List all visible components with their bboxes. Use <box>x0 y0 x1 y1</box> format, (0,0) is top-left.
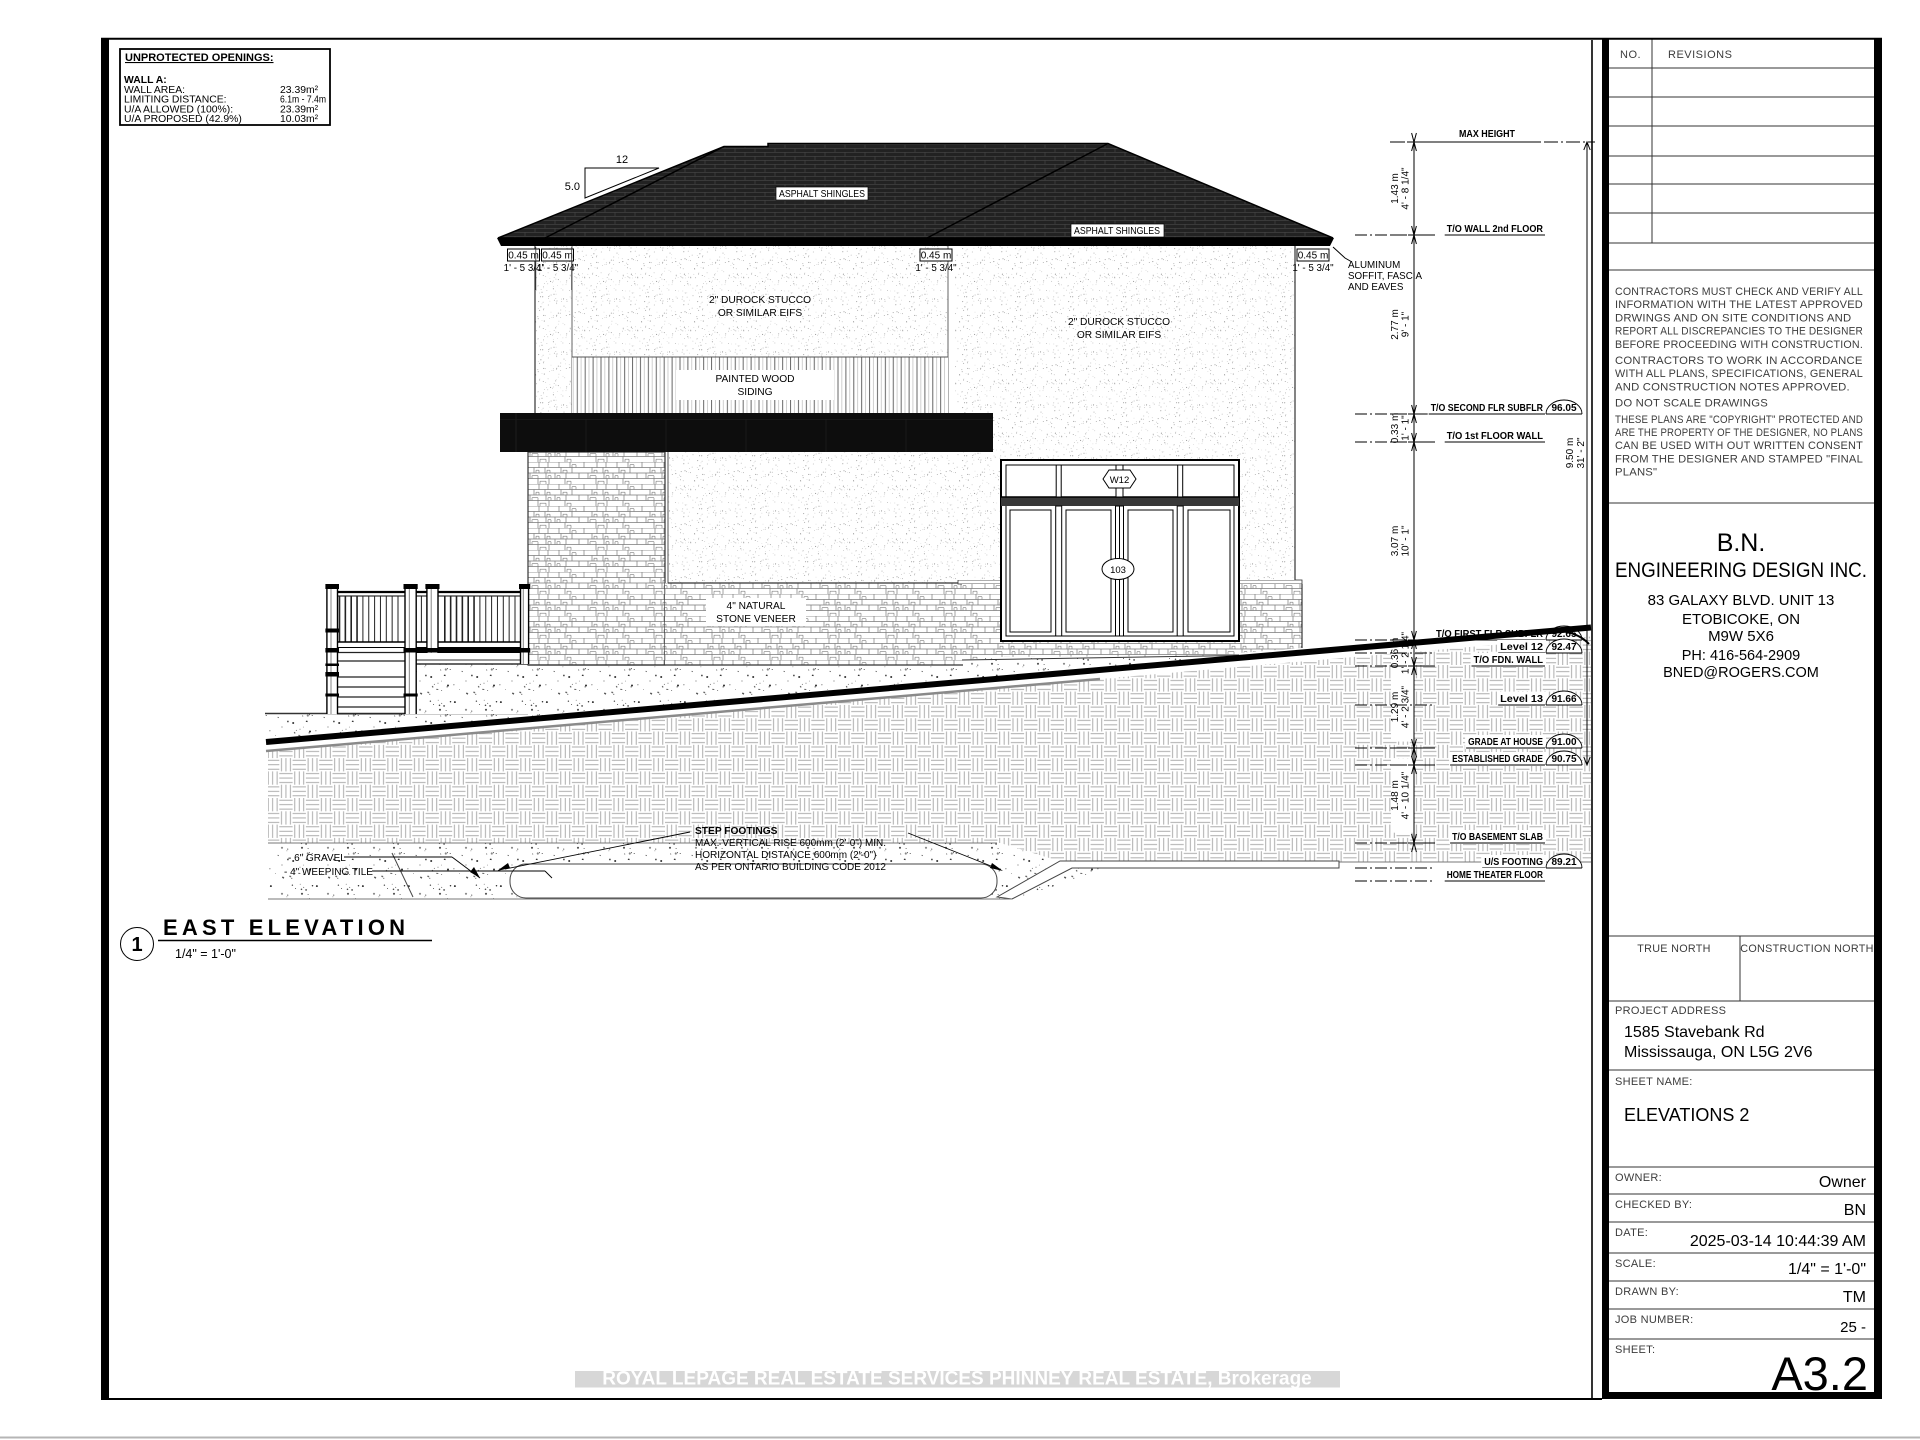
svg-text:INFORMATION WITH THE LATEST AP: INFORMATION WITH THE LATEST APPROVED <box>1615 299 1863 311</box>
svg-text:1.48 m: 1.48 m <box>1390 780 1401 811</box>
svg-text:2.77 m: 2.77 m <box>1390 309 1401 340</box>
svg-text:SHEET:: SHEET: <box>1615 1344 1655 1356</box>
svg-text:BEFORE PROCEEDING WITH CONSTRU: BEFORE PROCEEDING WITH CONSTRUCTION. <box>1615 339 1863 351</box>
svg-text:OR SIMILAR EIFS: OR SIMILAR EIFS <box>1077 330 1162 341</box>
svg-text:83 GALAXY BLVD. UNIT 13: 83 GALAXY BLVD. UNIT 13 <box>1648 592 1835 609</box>
svg-text:CONSTRUCTION NORTH: CONSTRUCTION NORTH <box>1740 943 1874 955</box>
svg-text:1' - 5 3/4": 1' - 5 3/4" <box>1292 263 1334 274</box>
svg-text:AND EAVES: AND EAVES <box>1348 282 1404 293</box>
svg-text:ELEVATIONS 2: ELEVATIONS 2 <box>1624 1105 1749 1125</box>
svg-text:2" DUROCK STUCCO: 2" DUROCK STUCCO <box>709 295 811 306</box>
svg-text:91.00: 91.00 <box>1551 737 1576 748</box>
svg-text:SOFFIT, FASCIA: SOFFIT, FASCIA <box>1348 271 1422 282</box>
svg-text:SHEET NAME:: SHEET NAME: <box>1615 1076 1693 1088</box>
svg-text:DO NOT SCALE DRAWINGS: DO NOT SCALE DRAWINGS <box>1615 398 1768 410</box>
svg-text:CAN BE USED WITH OUT WRITTEN C: CAN BE USED WITH OUT WRITTEN CONSENT <box>1615 440 1863 452</box>
svg-text:PH: 416-564-2909: PH: 416-564-2909 <box>1682 648 1801 664</box>
svg-text:NO.: NO. <box>1620 49 1641 61</box>
svg-text:91.66: 91.66 <box>1551 694 1576 705</box>
svg-text:1' - 5 3/4": 1' - 5 3/4" <box>537 263 579 274</box>
svg-text:- 6" GRAVEL: - 6" GRAVEL <box>288 853 346 864</box>
svg-text:0.45 m: 0.45 m <box>1298 251 1329 262</box>
svg-text:PAINTED WOOD: PAINTED WOOD <box>715 374 794 385</box>
svg-text:BNED@ROGERS.COM: BNED@ROGERS.COM <box>1663 665 1819 681</box>
svg-text:CONTRACTORS MUST CHECK AND VER: CONTRACTORS MUST CHECK AND VERIFY ALL <box>1615 286 1863 298</box>
svg-text:12: 12 <box>616 154 628 166</box>
svg-text:ENGINEERING DESIGN INC.: ENGINEERING DESIGN INC. <box>1615 558 1867 582</box>
svg-text:4' - 2 3/4": 4' - 2 3/4" <box>1401 685 1412 728</box>
svg-text:103: 103 <box>1110 565 1126 576</box>
svg-text:- 4" WEEPING TILE: - 4" WEEPING TILE <box>284 867 373 878</box>
svg-text:DRAWN BY:: DRAWN BY: <box>1615 1286 1679 1298</box>
svg-text:DRWINGS AND ON SITE CONDITIONS: DRWINGS AND ON SITE CONDITIONS AND <box>1615 312 1851 324</box>
svg-text:ASPHALT SHINGLES: ASPHALT SHINGLES <box>779 189 865 200</box>
svg-text:WITH ALL PLANS, SPECIFICATIONS: WITH ALL PLANS, SPECIFICATIONS, GENERAL <box>1615 368 1863 380</box>
svg-text:U/S FOOTING: U/S FOOTING <box>1484 856 1543 868</box>
svg-text:T/O 1st FLOOR WALL: T/O 1st FLOOR WALL <box>1447 430 1544 442</box>
svg-text:5.0: 5.0 <box>565 181 580 193</box>
svg-text:92.47: 92.47 <box>1551 642 1576 653</box>
svg-text:4' - 8 1/4": 4' - 8 1/4" <box>1401 167 1412 210</box>
svg-text:T/O SECOND FLR SUBFLR: T/O SECOND FLR SUBFLR <box>1431 402 1544 414</box>
svg-text:MAX HEIGHT: MAX HEIGHT <box>1459 128 1515 140</box>
svg-text:0.33 m: 0.33 m <box>1390 413 1401 444</box>
svg-text:T/O WALL 2nd FLOOR: T/O WALL 2nd FLOOR <box>1447 223 1544 235</box>
svg-text:ARE THE PROPERTY OF THE DESIGN: ARE THE PROPERTY OF THE DESIGNER, NO PLA… <box>1615 427 1863 439</box>
svg-text:T/O FDN. WALL: T/O FDN. WALL <box>1474 654 1544 666</box>
svg-text:0.45 m: 0.45 m <box>508 251 539 262</box>
svg-text:1' - 5 3/4": 1' - 5 3/4" <box>915 263 957 274</box>
svg-text:ROYAL LEPAGE REAL ESTATE SERVI: ROYAL LEPAGE REAL ESTATE SERVICES PHINNE… <box>602 1369 1312 1390</box>
svg-text:4" NATURAL: 4" NATURAL <box>727 601 786 612</box>
svg-text:1: 1 <box>131 934 142 956</box>
svg-text:ALUMINUM: ALUMINUM <box>1348 260 1400 271</box>
svg-text:90.75: 90.75 <box>1551 754 1576 765</box>
svg-text:89.21: 89.21 <box>1551 857 1576 868</box>
svg-text:PLANS": PLANS" <box>1615 467 1657 479</box>
svg-text:CONTRACTORS TO WORK IN ACCORDA: CONTRACTORS TO WORK IN ACCORDANCE <box>1615 355 1863 367</box>
svg-text:M9W 5X6: M9W 5X6 <box>1708 628 1774 645</box>
svg-text:25 -: 25 - <box>1840 1319 1866 1336</box>
svg-text:0.45 m: 0.45 m <box>921 251 952 262</box>
svg-text:EAST ELEVATION: EAST ELEVATION <box>163 915 409 940</box>
svg-text:10' - 1": 10' - 1" <box>1401 525 1412 556</box>
svg-text:ESTABLISHED GRADE: ESTABLISHED GRADE <box>1452 753 1543 765</box>
svg-text:SCALE:: SCALE: <box>1615 1258 1656 1270</box>
svg-text:HORIZONTAL DISTANCE 600mm (2'-: HORIZONTAL DISTANCE 600mm (2'-0") <box>695 850 876 861</box>
svg-text:SIDING: SIDING <box>737 387 772 398</box>
svg-text:96.05: 96.05 <box>1551 403 1576 414</box>
svg-text:REPORT ALL DISCREPANCIES TO TH: REPORT ALL DISCREPANCIES TO THE DESIGNER <box>1615 326 1863 338</box>
svg-text:3.07 m: 3.07 m <box>1390 526 1401 557</box>
svg-text:1/4" = 1'-0": 1/4" = 1'-0" <box>1788 1261 1866 1278</box>
svg-text:GRADE AT HOUSE: GRADE AT HOUSE <box>1468 736 1543 748</box>
svg-text:TM: TM <box>1843 1289 1866 1306</box>
svg-text:Owner: Owner <box>1819 1174 1867 1191</box>
svg-text:T/O BASEMENT SLAB: T/O BASEMENT SLAB <box>1452 831 1543 843</box>
svg-text:1.29 m: 1.29 m <box>1390 692 1401 723</box>
svg-text:FROM THE DESIGNER AND STAMPED: FROM THE DESIGNER AND STAMPED "FINAL <box>1615 453 1863 465</box>
svg-text:OR SIMILAR EIFS: OR SIMILAR EIFS <box>718 308 803 319</box>
svg-text:B.N.: B.N. <box>1717 529 1766 557</box>
svg-text:HOME THEATER FLOOR: HOME THEATER FLOOR <box>1447 869 1544 881</box>
svg-text:BN: BN <box>1844 1202 1866 1219</box>
svg-text:MAX. VERTICAL RISE 600mm (2'-0: MAX. VERTICAL RISE 600mm (2'-0") MIN. <box>695 838 886 849</box>
svg-text:ASPHALT SHINGLES: ASPHALT SHINGLES <box>1074 226 1160 237</box>
svg-text:Mississauga, ON L5G 2V6: Mississauga, ON L5G 2V6 <box>1624 1044 1813 1061</box>
svg-text:JOB NUMBER:: JOB NUMBER: <box>1615 1314 1693 1326</box>
svg-text:THESE PLANS ARE "COPYRIGHT" PR: THESE PLANS ARE "COPYRIGHT" PROTECTED AN… <box>1615 414 1863 426</box>
svg-text:31' - 2": 31' - 2" <box>1576 437 1587 468</box>
svg-text:10.03m²: 10.03m² <box>280 114 319 125</box>
svg-text:2025-03-14 10:44:39 AM: 2025-03-14 10:44:39 AM <box>1690 1233 1866 1250</box>
svg-text:1585 Stavebank Rd: 1585 Stavebank Rd <box>1624 1024 1765 1041</box>
svg-text:1/4" = 1'-0": 1/4" = 1'-0" <box>175 947 236 961</box>
svg-text:UNPROTECTED OPENINGS:: UNPROTECTED OPENINGS: <box>125 52 274 64</box>
svg-text:PROJECT ADDRESS: PROJECT ADDRESS <box>1615 1005 1726 1017</box>
svg-text:0.45 m: 0.45 m <box>542 251 573 262</box>
svg-text:OWNER:: OWNER: <box>1615 1172 1662 1184</box>
svg-text:Level 13: Level 13 <box>1500 693 1543 705</box>
svg-text:9' - 1": 9' - 1" <box>1401 311 1412 337</box>
svg-text:1' - 1": 1' - 1" <box>1401 415 1412 441</box>
svg-text:U/A PROPOSED (42.9%): U/A PROPOSED (42.9%) <box>124 114 242 125</box>
svg-text:AS PER ONTARIO BUILDING CODE 2: AS PER ONTARIO BUILDING CODE 2012 <box>695 862 886 873</box>
svg-text:Level 12: Level 12 <box>1500 641 1543 653</box>
svg-text:9.50 m: 9.50 m <box>1565 438 1576 469</box>
svg-text:AND CONSTRUCTION NOTES APPROVE: AND CONSTRUCTION NOTES APPROVED. <box>1615 381 1850 393</box>
svg-text:TRUE NORTH: TRUE NORTH <box>1637 943 1711 955</box>
svg-text:W12: W12 <box>1110 475 1130 486</box>
svg-text:ETOBICOKE, ON: ETOBICOKE, ON <box>1682 611 1800 628</box>
svg-text:2" DUROCK STUCCO: 2" DUROCK STUCCO <box>1068 317 1170 328</box>
svg-text:DATE:: DATE: <box>1615 1227 1648 1239</box>
svg-text:STONE VENEER: STONE VENEER <box>716 614 796 625</box>
svg-text:REVISIONS: REVISIONS <box>1668 49 1732 61</box>
svg-text:4' - 10 1/4": 4' - 10 1/4" <box>1401 771 1412 819</box>
svg-text:STEP FOOTINGS: STEP FOOTINGS <box>695 826 778 837</box>
svg-text:1.43 m: 1.43 m <box>1390 173 1401 204</box>
svg-text:CHECKED BY:: CHECKED BY: <box>1615 1199 1692 1211</box>
